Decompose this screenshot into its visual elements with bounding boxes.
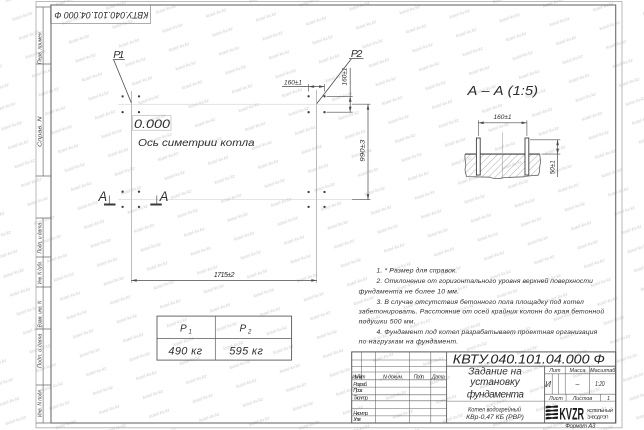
svg-text:4. Фундамент под котел разраба: 4. Фундамент под котел разрабатывает про… [377,328,598,336]
svg-text:1715±2: 1715±2 [214,270,235,279]
svg-text:Пров.: Пров. [353,388,363,394]
svg-text:2: 2 [247,330,252,336]
svg-text:И: И [545,380,551,389]
svg-text:фундамента не более 10 мм.: фундамента не более 10 мм. [359,288,460,296]
svg-text:2. Отклонение от горизонтально: 2. Отклонение от горизонтального уровня … [376,277,594,285]
svg-text:Котел водогрейный: Котел водогрейный [468,407,522,414]
svg-text:0.000: 0.000 [134,117,170,131]
svg-text:A: A [159,188,169,204]
svg-text:Утв.: Утв. [353,417,361,423]
svg-text:KVZR: KVZR [559,405,584,423]
svg-text:Инв. N дубл.: Инв. N дубл. [38,261,44,285]
svg-text:P: P [240,324,247,335]
svg-text:160±1: 160±1 [494,114,512,121]
svg-text:1: 1 [189,330,192,336]
svg-text:–: – [575,382,580,389]
svg-text:КВТУ.040.101.04.000 Ф: КВТУ.040.101.04.000 Ф [453,351,605,366]
svg-text:А – А (1:5): А – А (1:5) [466,84,538,98]
svg-text:КВТУ.040.101.04.000 Ф: КВТУ.040.101.04.000 Ф [54,9,148,20]
svg-text:490 кг: 490 кг [168,346,202,358]
svg-text:Подп. и дата: Подп. и дата [38,334,44,369]
svg-text:Взам. инв. N: Взам. инв. N [38,301,44,328]
svg-text:Дата: Дата [431,375,445,381]
svg-text:подушки 500 мм.: подушки 500 мм. [359,318,416,326]
svg-text:Листов: Листов [572,396,593,402]
svg-text:ЗАВОД РЭП: ЗАВОД РЭП [587,414,609,420]
svg-text:по нагрузкам на фундамент.: по нагрузкам на фундамент. [359,337,459,345]
svg-text:1: 1 [607,396,610,402]
svg-text:Масса: Масса [570,368,586,374]
svg-text:Подп.: Подп. [414,375,425,381]
svg-text:Н.контр.: Н.контр. [353,411,368,417]
svg-text:595 кг: 595 кг [229,346,263,358]
svg-text:50±1: 50±1 [549,160,556,174]
svg-text:установку: установку [469,377,521,388]
svg-text:КВр-0,47 КБ (РВР): КВр-0,47 КБ (РВР) [466,415,524,421]
svg-text:Т.контр.: Т.контр. [353,396,368,402]
svg-text:990±3: 990±3 [360,139,367,161]
svg-text:P1: P1 [113,49,124,61]
svg-text:забетонировать. Расстояние от: забетонировать. Расстояние от осей крайн… [358,308,605,316]
svg-text:Ось симетрии котла: Ось симетрии котла [138,137,255,149]
svg-text:1:20: 1:20 [595,381,605,388]
svg-text:1. * Размер для справок.: 1. * Размер для справок. [377,266,458,274]
svg-text:A: A [98,188,108,204]
svg-text:фундамента: фундамента [467,389,524,401]
svg-text:Изм.Лист: Изм.Лист [352,375,366,381]
svg-text:Перв. примен.: Перв. примен. [38,31,44,64]
svg-text:N докум.: N докум. [383,375,404,381]
svg-text:160±1: 160±1 [342,67,349,85]
svg-text:Лит: Лит [548,368,561,374]
svg-text:Инв. N подл.: Инв. N подл. [38,389,44,418]
svg-text:Задание на: Задание на [468,366,522,377]
svg-text:Масштаб: Масштаб [590,368,616,374]
svg-text:Подп. и дата: Подп. и дата [38,223,44,254]
svg-text:160±1: 160±1 [284,80,302,87]
svg-text:P: P [180,324,187,335]
svg-text:Справ. N: Справ. N [38,116,44,147]
svg-text:Формат А3: Формат А3 [565,424,596,430]
svg-text:3. В случае отсутствия бетонно: 3. В случае отсутствия бетонного пола пл… [377,298,585,306]
svg-text:Лист: Лист [548,396,563,402]
